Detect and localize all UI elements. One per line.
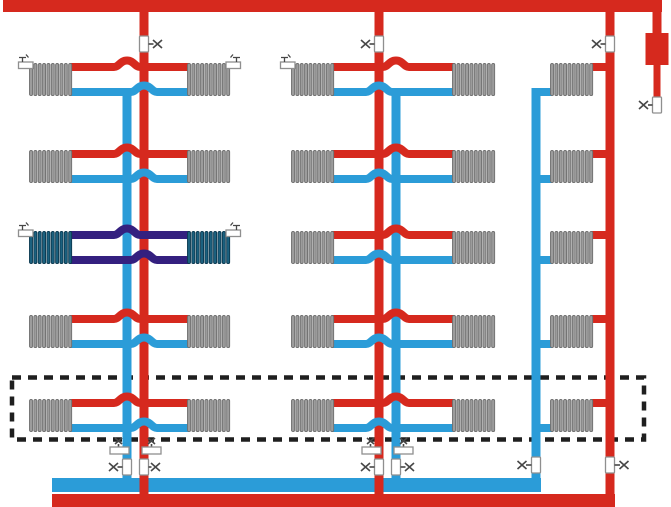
riser-bottom-valves [361, 438, 414, 475]
radiator [551, 151, 593, 183]
floor-5 [534, 63, 611, 96]
return-stub [534, 88, 552, 96]
bottom-mains [52, 478, 615, 507]
valve-handle-icon [151, 463, 160, 471]
return-stub [534, 424, 552, 432]
radiator [551, 400, 593, 432]
tank-feed-pipe [653, 12, 662, 35]
riser-group-3 [518, 12, 629, 494]
radiator [188, 151, 230, 183]
radiator [292, 232, 334, 264]
radiator [453, 151, 495, 183]
supply-shutoff-valve [140, 459, 149, 475]
tank-drain-pipe [654, 65, 661, 98]
floor-5 [19, 55, 241, 96]
radiator [292, 316, 334, 348]
union-fitting [142, 447, 161, 454]
riser-top-valve [140, 36, 149, 52]
valve-handle-icon [620, 461, 629, 469]
air-vent-icon [226, 223, 241, 237]
supply-shutoff-valve [606, 457, 615, 473]
union-fitting [362, 447, 381, 454]
radiator [551, 64, 593, 96]
valve-handle-icon [109, 463, 118, 471]
radiator [551, 232, 593, 264]
radiator [292, 400, 334, 432]
radiator [188, 316, 230, 348]
riser-top-valve [375, 36, 384, 52]
floor-3 [534, 231, 611, 264]
return-stub [534, 175, 552, 183]
bottom-supply-main [52, 494, 615, 507]
cold-radiator [30, 232, 72, 264]
radiator [30, 400, 72, 432]
radiator [292, 64, 334, 96]
radiator [453, 64, 495, 96]
return-stub [534, 256, 552, 264]
floor-1 [534, 399, 611, 432]
return-branch [70, 86, 189, 93]
return-shutoff-valve [123, 459, 132, 475]
tank-drain-valve [653, 97, 662, 113]
valve-handle-icon [405, 463, 414, 471]
radiator [453, 316, 495, 348]
supply-stub [591, 315, 611, 323]
supply-branch [70, 61, 189, 68]
return-shutoff-valve [392, 459, 401, 475]
air-vent-icon [281, 55, 296, 69]
valve-handle-icon [639, 101, 648, 109]
return-shutoff-valve [532, 457, 541, 473]
union-fitting [394, 447, 413, 454]
cold-radiator [188, 232, 230, 264]
radiator [30, 64, 72, 96]
union-fitting [110, 447, 129, 454]
radiator [188, 400, 230, 432]
heating-system-diagram [0, 0, 671, 507]
valve-handle-icon [361, 463, 370, 471]
valve-handle-icon [592, 40, 601, 48]
air-vent-icon [19, 223, 34, 237]
valve-handle-icon [361, 40, 370, 48]
floor-2 [534, 315, 611, 348]
air-line-and-expansion-tank [3, 0, 669, 113]
valve-handle-icon [153, 40, 162, 48]
riser-top-valve [606, 36, 615, 52]
riser-bottom-valves [109, 438, 161, 475]
radiator [188, 64, 230, 96]
supply-stub [591, 150, 611, 158]
supply-riser [606, 12, 615, 494]
riser-group-2 [281, 12, 495, 506]
radiator [551, 316, 593, 348]
supply-stub [591, 63, 611, 71]
supply-shutoff-valve [375, 459, 384, 475]
supply-stub [591, 399, 611, 407]
supply-stub [591, 231, 611, 239]
riser-group-1 [19, 12, 241, 506]
floor-5 [281, 55, 495, 96]
diagram-canvas [0, 0, 671, 507]
valve-handle-icon [518, 461, 527, 469]
supply-branch [332, 61, 454, 68]
radiator [292, 151, 334, 183]
top-air-main [3, 0, 662, 12]
expansion-tank [646, 33, 669, 65]
air-vent-icon [226, 55, 241, 69]
radiator [30, 151, 72, 183]
floor-4 [534, 150, 611, 183]
radiator [453, 232, 495, 264]
radiator [453, 400, 495, 432]
return-stub [534, 340, 552, 348]
return-branch [332, 86, 454, 93]
radiator [30, 316, 72, 348]
air-vent-icon [19, 55, 34, 69]
